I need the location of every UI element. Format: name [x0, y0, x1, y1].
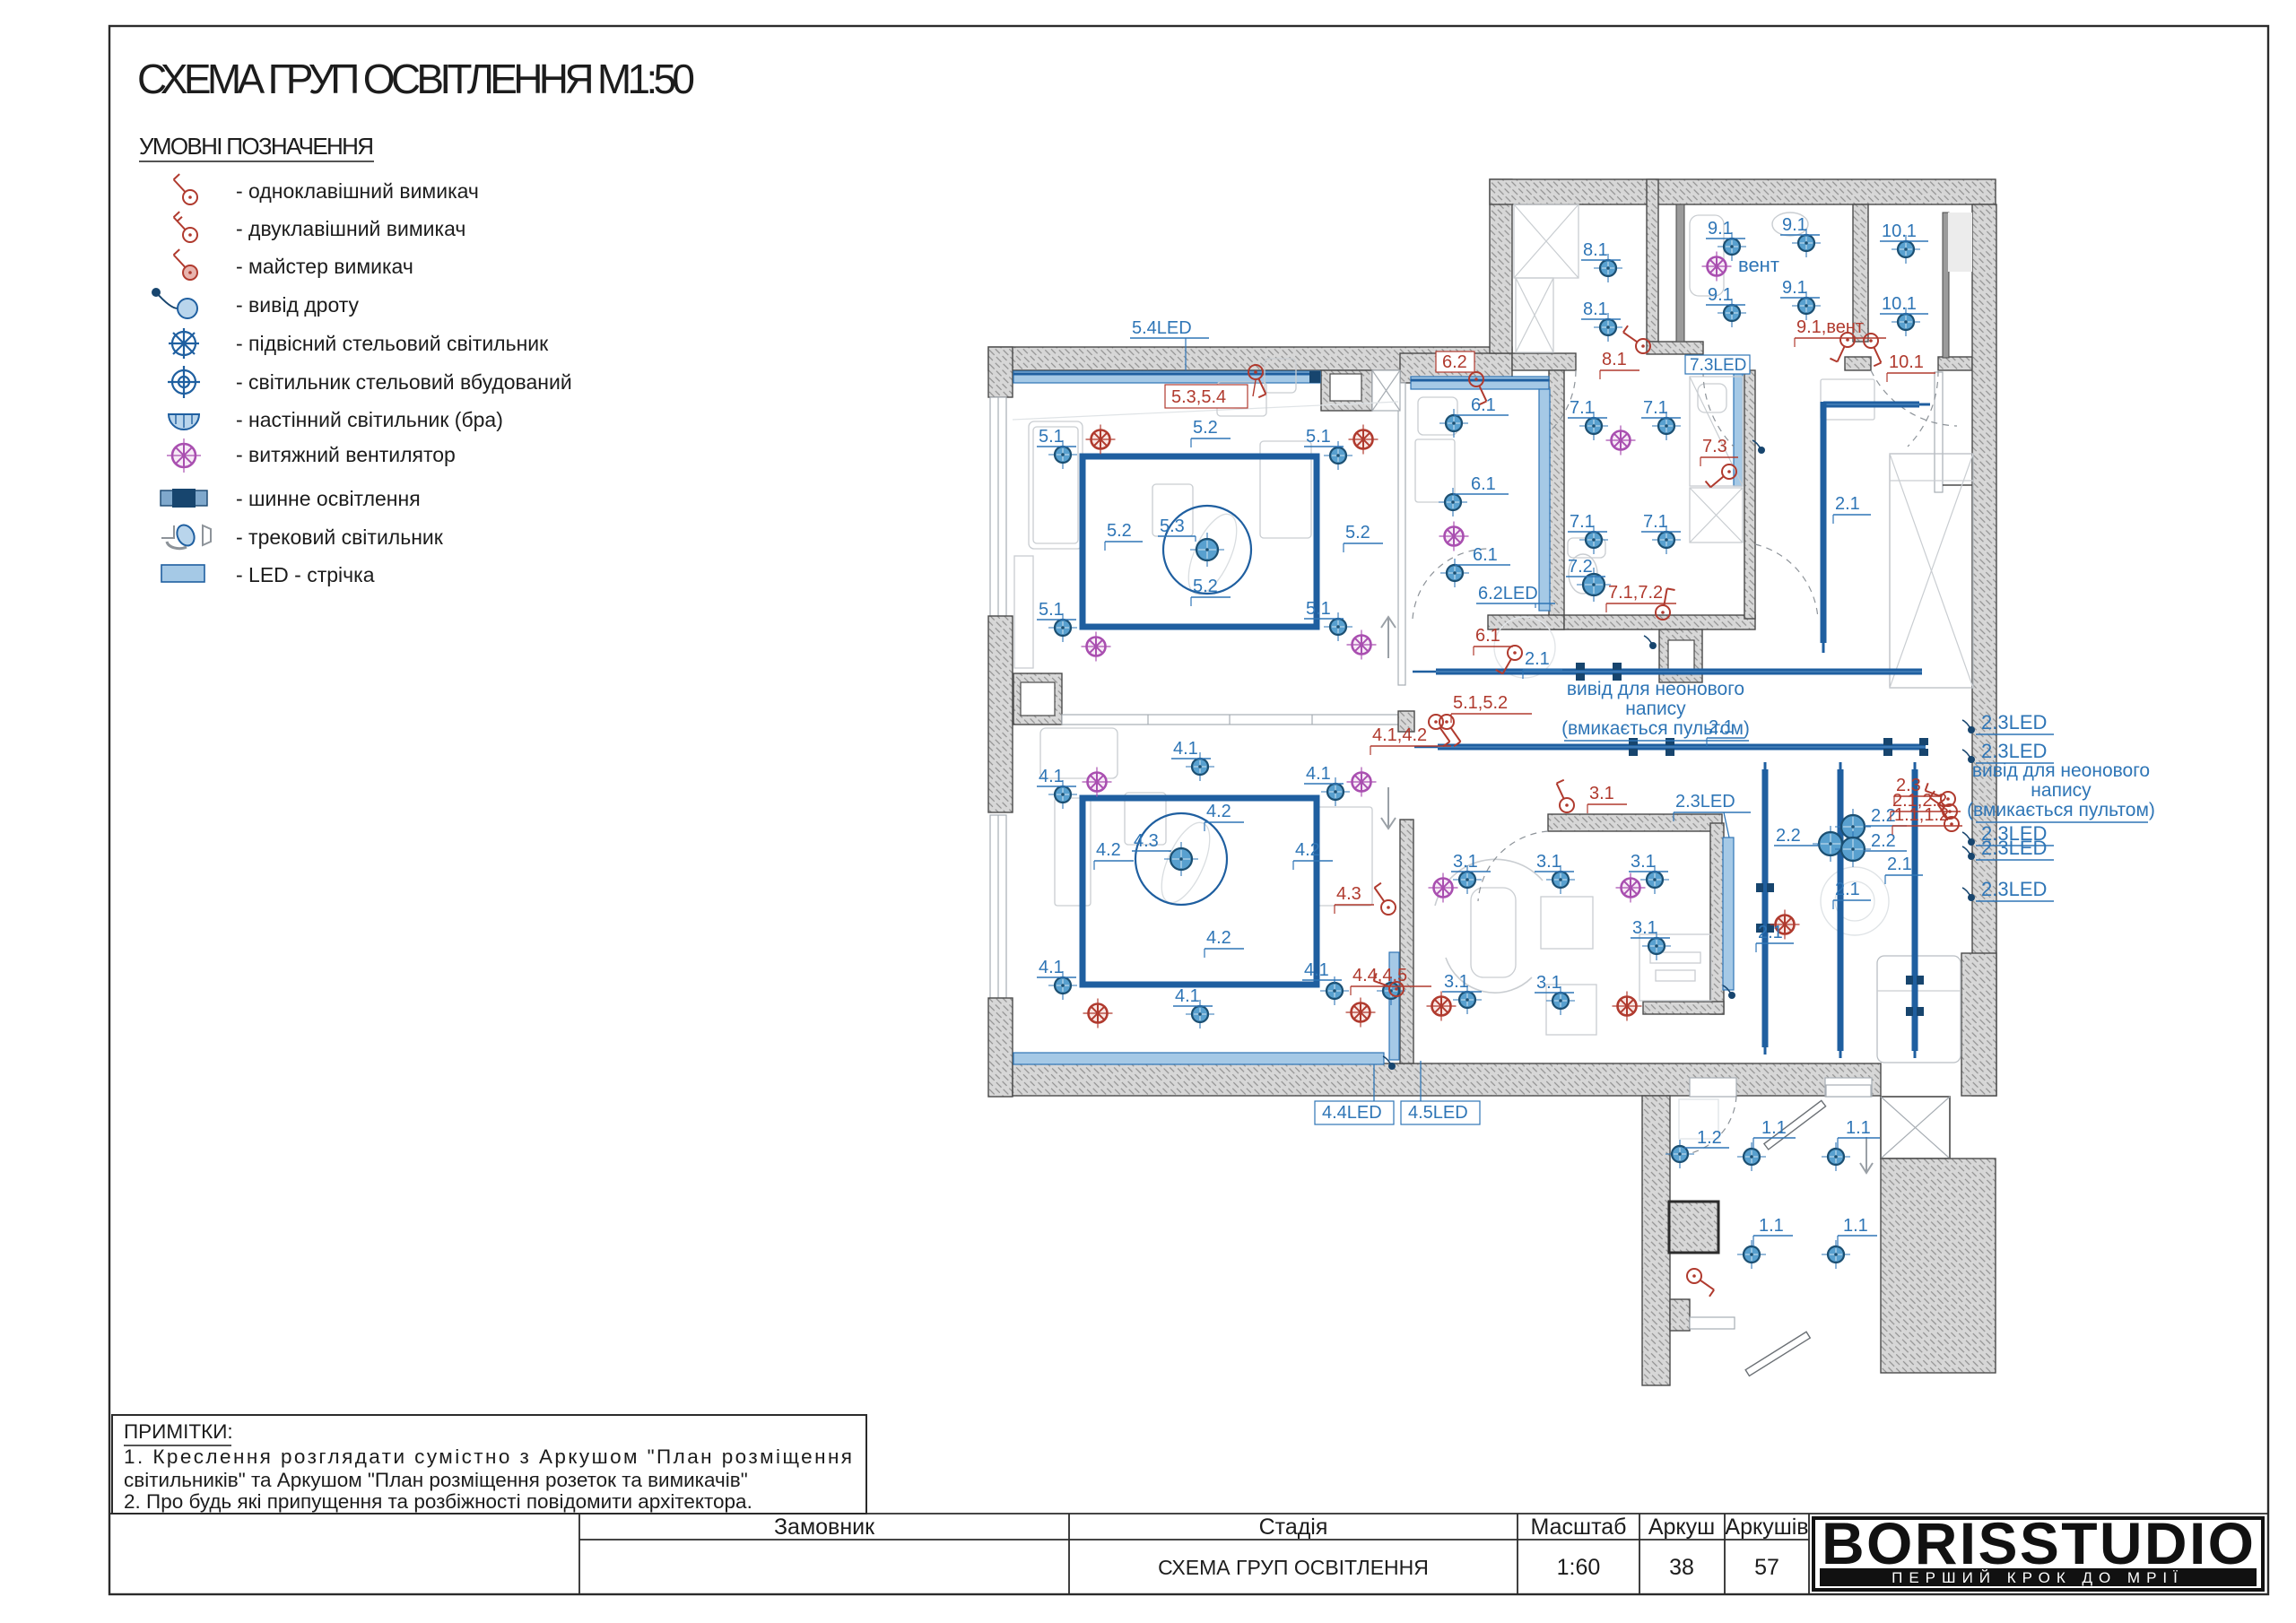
svg-text:8.1: 8.1 [1602, 350, 1627, 369]
svg-text:3.1: 3.1 [1536, 973, 1561, 993]
svg-text:4.2: 4.2 [1206, 802, 1231, 821]
svg-text:3.1: 3.1 [1536, 852, 1561, 872]
svg-text:вивід для неонового: вивід для неонового [1972, 760, 2150, 781]
svg-text:- трековий світильник: - трековий світильник [236, 525, 444, 549]
svg-text:- двуклавішний вимикач: - двуклавішний вимикач [236, 217, 465, 240]
svg-text:10.1: 10.1 [1882, 294, 1917, 314]
svg-text:5.2: 5.2 [1345, 523, 1370, 542]
svg-text:- витяжний вентилятор: - витяжний вентилятор [236, 443, 456, 466]
svg-text:2.2: 2.2 [1776, 826, 1801, 846]
svg-text:4.5LED: 4.5LED [1408, 1103, 1468, 1123]
svg-text:4.2: 4.2 [1206, 928, 1231, 948]
svg-text:2.3LED: 2.3LED [1981, 878, 2047, 900]
svg-text:4.3: 4.3 [1134, 831, 1159, 851]
svg-text:4.1: 4.1 [1039, 767, 1064, 786]
svg-text:4.1: 4.1 [1175, 986, 1200, 1006]
svg-text:3.1: 3.1 [1444, 972, 1469, 992]
svg-text:- майстер вимикач: - майстер вимикач [236, 255, 413, 278]
svg-text:7.3LED: 7.3LED [1690, 356, 1746, 375]
svg-text:- LED - стрічка: - LED - стрічка [236, 563, 375, 586]
svg-text:4.2: 4.2 [1096, 840, 1121, 860]
svg-text:9.1: 9.1 [1708, 285, 1733, 305]
svg-text:2.3LED: 2.3LED [1981, 740, 2047, 762]
svg-text:2. Про будь які припущення та: 2. Про будь які припущення та розбіжност… [124, 1490, 752, 1513]
svg-text:7.1: 7.1 [1570, 398, 1595, 418]
svg-text:10.1: 10.1 [1882, 221, 1917, 241]
svg-text:- одноклавішний вимикач: - одноклавішний вимикач [236, 179, 479, 203]
svg-text:8.1: 8.1 [1583, 299, 1608, 319]
svg-text:7.1: 7.1 [1643, 398, 1668, 418]
svg-text:3.1: 3.1 [1589, 784, 1614, 803]
svg-text:ПРИМІТКИ:: ПРИМІТКИ: [124, 1420, 233, 1443]
svg-text:6.2: 6.2 [1442, 352, 1467, 372]
svg-text:9.1: 9.1 [1708, 219, 1733, 239]
svg-text:- вивід дроту: - вивід дроту [236, 293, 360, 317]
svg-text:1.1: 1.1 [1846, 1118, 1871, 1138]
svg-text:2.1: 2.1 [1758, 923, 1783, 942]
svg-text:5.1: 5.1 [1306, 599, 1331, 619]
svg-text:5.2: 5.2 [1193, 418, 1218, 438]
svg-text:- настінний світильник (бра): - настінний світильник (бра) [236, 408, 503, 431]
svg-text:4.1: 4.1 [1039, 958, 1064, 977]
svg-text:4.1: 4.1 [1306, 764, 1331, 784]
svg-text:4.4LED: 4.4LED [1322, 1103, 1382, 1123]
svg-text:- шинне освітлення: - шинне освітлення [236, 487, 421, 510]
svg-text:7.1: 7.1 [1643, 512, 1668, 532]
svg-text:7.1,7.2: 7.1,7.2 [1608, 583, 1663, 603]
svg-text:9.1: 9.1 [1782, 278, 1807, 298]
svg-text:Стадія: Стадія [1259, 1515, 1328, 1540]
svg-text:4.1: 4.1 [1304, 960, 1329, 980]
svg-text:5.3,5.4: 5.3,5.4 [1171, 387, 1226, 407]
svg-text:4.2: 4.2 [1295, 840, 1320, 860]
svg-text:10.1: 10.1 [1889, 352, 1924, 372]
svg-text:напису: напису [2031, 780, 2092, 801]
svg-text:- підвісний стельовий світильн: - підвісний стельовий світильник [236, 332, 549, 355]
svg-text:6.1: 6.1 [1473, 545, 1498, 565]
svg-text:38: 38 [1669, 1555, 1694, 1580]
svg-text:7.2: 7.2 [1568, 557, 1593, 577]
svg-text:4.4,4.5: 4.4,4.5 [1352, 966, 1407, 985]
svg-text:УМОВНІ ПОЗНАЧЕННЯ: УМОВНІ ПОЗНАЧЕННЯ [139, 133, 374, 160]
svg-text:- світильник стельовий вбудова: - світильник стельовий вбудований [236, 370, 572, 394]
svg-text:57: 57 [1754, 1555, 1779, 1580]
svg-text:2.3LED: 2.3LED [1675, 792, 1735, 811]
svg-text:5.2: 5.2 [1193, 577, 1218, 596]
svg-text:1.1,1.2: 1.1,1.2 [1894, 805, 1949, 825]
svg-text:6.1: 6.1 [1475, 626, 1500, 646]
svg-text:1.1: 1.1 [1759, 1216, 1784, 1236]
svg-text:5.1: 5.1 [1039, 427, 1064, 447]
svg-text:4.3: 4.3 [1336, 884, 1361, 904]
svg-text:4.1,4.2: 4.1,4.2 [1372, 725, 1427, 745]
svg-text:1.2: 1.2 [1697, 1128, 1722, 1148]
svg-text:2.1: 2.1 [1835, 494, 1860, 514]
svg-text:7.3: 7.3 [1702, 437, 1727, 456]
svg-text:1.1: 1.1 [1843, 1216, 1868, 1236]
svg-text:світильників" та Аркушом "План: світильників" та Аркушом "План розміщенн… [124, 1469, 748, 1491]
svg-text:3.1: 3.1 [1632, 918, 1657, 938]
svg-text:(вмикається пультом): (вмикається пультом) [1561, 718, 1750, 739]
svg-text:6.2LED: 6.2LED [1478, 584, 1538, 603]
svg-text:Аркуш: Аркуш [1648, 1515, 1715, 1540]
svg-text:6.1: 6.1 [1471, 474, 1496, 494]
svg-text:5.2: 5.2 [1107, 521, 1132, 541]
svg-text:1:60: 1:60 [1557, 1555, 1601, 1580]
svg-text:Масштаб: Масштаб [1531, 1515, 1627, 1540]
svg-text:9.1,вент: 9.1,вент [1796, 317, 1864, 337]
svg-text:2.1: 2.1 [1835, 880, 1860, 899]
svg-text:5.1: 5.1 [1306, 427, 1331, 447]
svg-text:2.3LED: 2.3LED [1981, 711, 2047, 733]
svg-text:1. Креслення розглядати суміст: 1. Креслення розглядати сумістно з Аркуш… [124, 1445, 852, 1468]
svg-text:СХЕМА ГРУП ОСВІТЛЕННЯ: СХЕМА ГРУП ОСВІТЛЕННЯ [1158, 1556, 1429, 1579]
svg-text:8.1: 8.1 [1583, 240, 1608, 260]
svg-text:ПЕРШИЙ КРОК ДО МРІЇ: ПЕРШИЙ КРОК ДО МРІЇ [1892, 1569, 2184, 1586]
svg-text:5.1: 5.1 [1039, 600, 1064, 620]
svg-text:напису: напису [1625, 699, 1686, 719]
svg-text:3.1: 3.1 [1453, 852, 1478, 872]
svg-text:вент: вент [1738, 254, 1779, 276]
svg-text:7.1: 7.1 [1570, 512, 1595, 532]
svg-text:Замовник: Замовник [774, 1515, 875, 1540]
svg-text:9.1: 9.1 [1782, 215, 1807, 235]
svg-text:1.1: 1.1 [1761, 1118, 1787, 1138]
svg-text:СХЕМА ГРУП ОСВІТЛЕННЯ М1:50: СХЕМА ГРУП ОСВІТЛЕННЯ М1:50 [137, 56, 695, 102]
svg-text:вивід для неонового: вивід для неонового [1567, 679, 1744, 699]
svg-text:2.1: 2.1 [1525, 649, 1550, 669]
svg-text:5.3: 5.3 [1160, 516, 1185, 536]
svg-text:5.4LED: 5.4LED [1132, 318, 1192, 338]
svg-text:6.1: 6.1 [1471, 395, 1496, 415]
svg-text:4.1: 4.1 [1173, 739, 1198, 759]
svg-text:BORISSTUDIO: BORISSTUDIO [1822, 1510, 2254, 1576]
svg-text:(вмикається пультом): (вмикається пультом) [1967, 800, 2155, 820]
svg-text:3.1: 3.1 [1631, 852, 1656, 872]
svg-text:2.1: 2.1 [1887, 855, 1912, 874]
svg-text:5.1,5.2: 5.1,5.2 [1453, 693, 1508, 713]
svg-text:2.3LED: 2.3LED [1981, 837, 2047, 859]
svg-text:Аркушів: Аркушів [1725, 1515, 1808, 1540]
